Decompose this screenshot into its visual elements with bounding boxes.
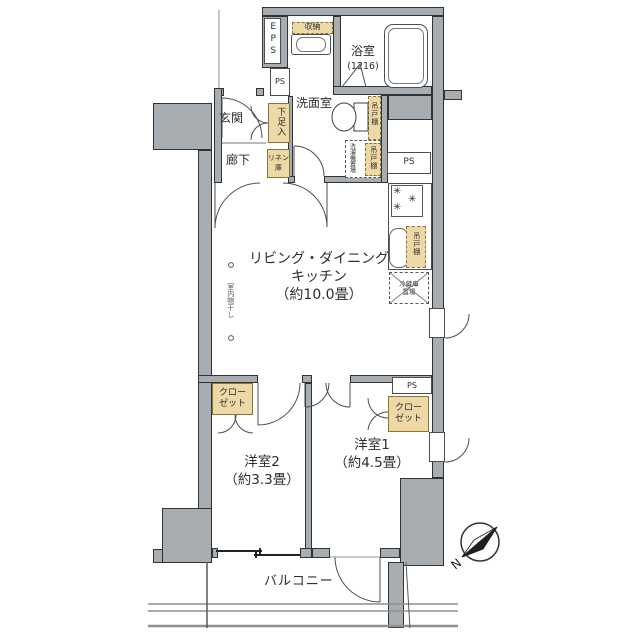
- toilet-bowl: [332, 103, 356, 131]
- drying-hook-dot: [229, 336, 234, 341]
- toilet: [332, 103, 368, 131]
- compass-needle-black: [462, 527, 497, 557]
- shoe-cabinet-door-arc: [251, 123, 268, 140]
- window1-arc: [445, 314, 469, 338]
- ldk-door-arc: [283, 183, 327, 227]
- bedroom1-door-arc: [305, 383, 329, 407]
- bath-folding-door: [342, 64, 366, 87]
- plan-linework: N: [0, 0, 640, 640]
- floorplan: 収納 EPS PS 下足入 リネン庫 吊戸棚 洗濯機置場 吊戸棚 PS ✳ ✳ …: [0, 0, 640, 640]
- drying-hook-dot: [229, 263, 234, 268]
- closet2-door-arc: [218, 415, 236, 433]
- balcony-right-edge: [406, 562, 410, 628]
- bedroom2-door-arc: [258, 383, 300, 425]
- closet1-door-arc: [368, 412, 388, 430]
- window2-arc: [445, 438, 469, 462]
- shoe-cabinet-door-arc: [251, 106, 268, 123]
- ldk-door-arc: [215, 183, 260, 228]
- closet2-door-arc: [235, 415, 253, 433]
- bedroom1-door-arc: [326, 383, 350, 407]
- compass-north-label: N: [448, 556, 464, 573]
- balcony-door-arc: [335, 557, 380, 602]
- washroom-door-arc: [294, 146, 324, 176]
- compass: N: [448, 523, 499, 572]
